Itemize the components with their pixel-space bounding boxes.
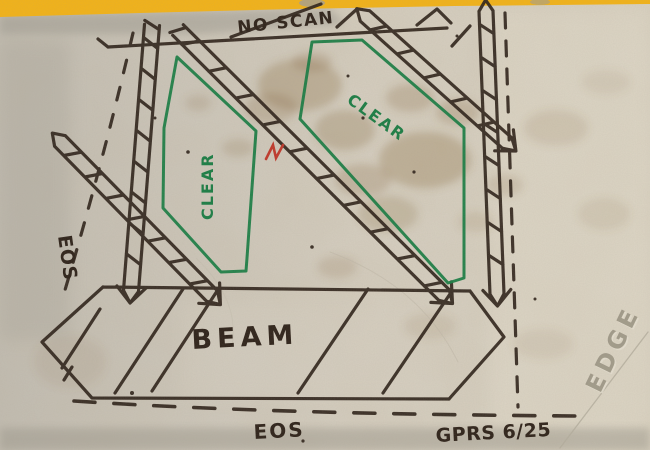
concrete-slab-photo: NO SCAN EOS BEAM EOS GPRS 6/25 CLEAR CLE… xyxy=(0,0,650,450)
photo-canvas: NO SCAN EOS BEAM EOS GPRS 6/25 CLEAR CLE… xyxy=(0,0,650,450)
photo-grain-overlay xyxy=(0,0,650,450)
